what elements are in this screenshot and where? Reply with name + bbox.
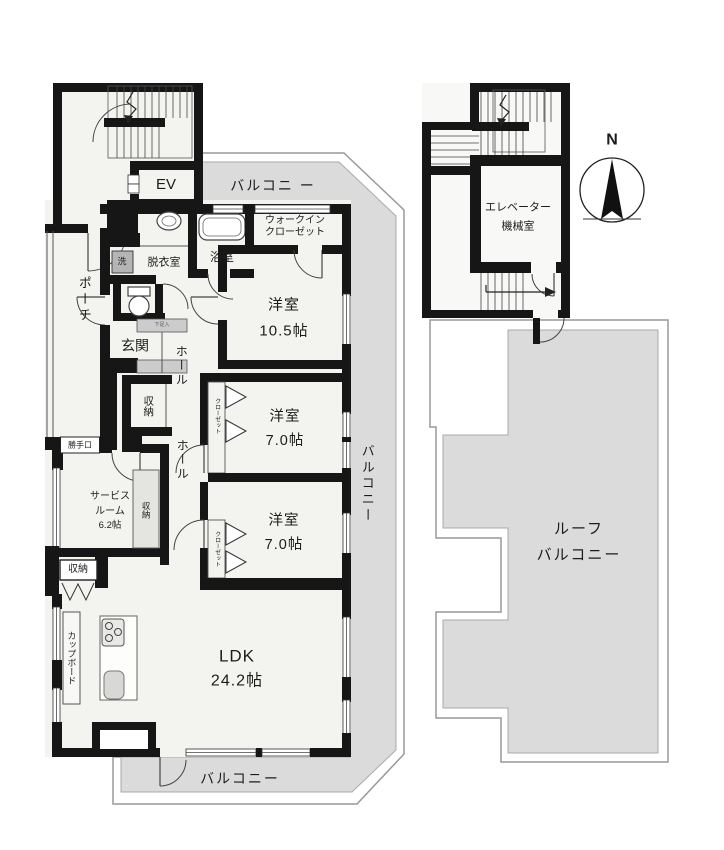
ev-label: EV: [156, 176, 176, 194]
dressing-room-label: 脱衣室: [148, 256, 181, 269]
north-label: N: [606, 130, 618, 149]
roof-balcony-label: ルーフバルコニー: [537, 517, 622, 568]
closet-lower-label: クローゼット: [212, 531, 219, 567]
floorplan-canvas: [0, 0, 724, 850]
cupboard-label: カップボード: [66, 631, 77, 685]
hall-upper-label: ホール: [174, 345, 188, 387]
balcony-bottom-label: バルコニー: [200, 771, 280, 788]
service-room-label: サービスルーム6.2帖: [90, 489, 130, 533]
porch-label: ポーチ: [76, 276, 92, 324]
back-door-label: 勝手口: [60, 437, 100, 454]
compass: [580, 158, 644, 222]
balcony-top-label: バルコニ ー: [230, 178, 316, 195]
bathroom-label: 浴室: [210, 250, 234, 264]
bedroom-mid-label: 洋室7.0帖: [266, 406, 305, 454]
shoe-cabinet-label: 下足入: [154, 322, 169, 328]
floor-plan: EV バルコニ ー ウォークインクローゼット 浴室 脱衣室 洗 洋室10.5帖 …: [0, 0, 724, 850]
balcony-right-label: バルコニー: [359, 444, 375, 524]
laundry-label: 洗: [117, 257, 126, 268]
walk-in-closet-label: ウォークインクローゼット: [265, 215, 325, 239]
storage-hall-label: 収納: [142, 396, 155, 417]
machine-room-label: エレベーター機械室: [485, 198, 551, 235]
hall-lower-label: ホール: [175, 439, 189, 481]
ldk-label: LDK24.2帖: [211, 643, 263, 694]
bedroom-large-label: 洋室10.5帖: [259, 293, 308, 344]
storage-service-label: 収納: [141, 502, 151, 519]
bedroom-small-label: 洋室7.0帖: [265, 510, 304, 558]
storage-kitchen-label: 収納: [68, 564, 88, 576]
entrance-label: 玄関: [121, 338, 149, 355]
closet-upper-label: クローゼット: [212, 398, 219, 434]
